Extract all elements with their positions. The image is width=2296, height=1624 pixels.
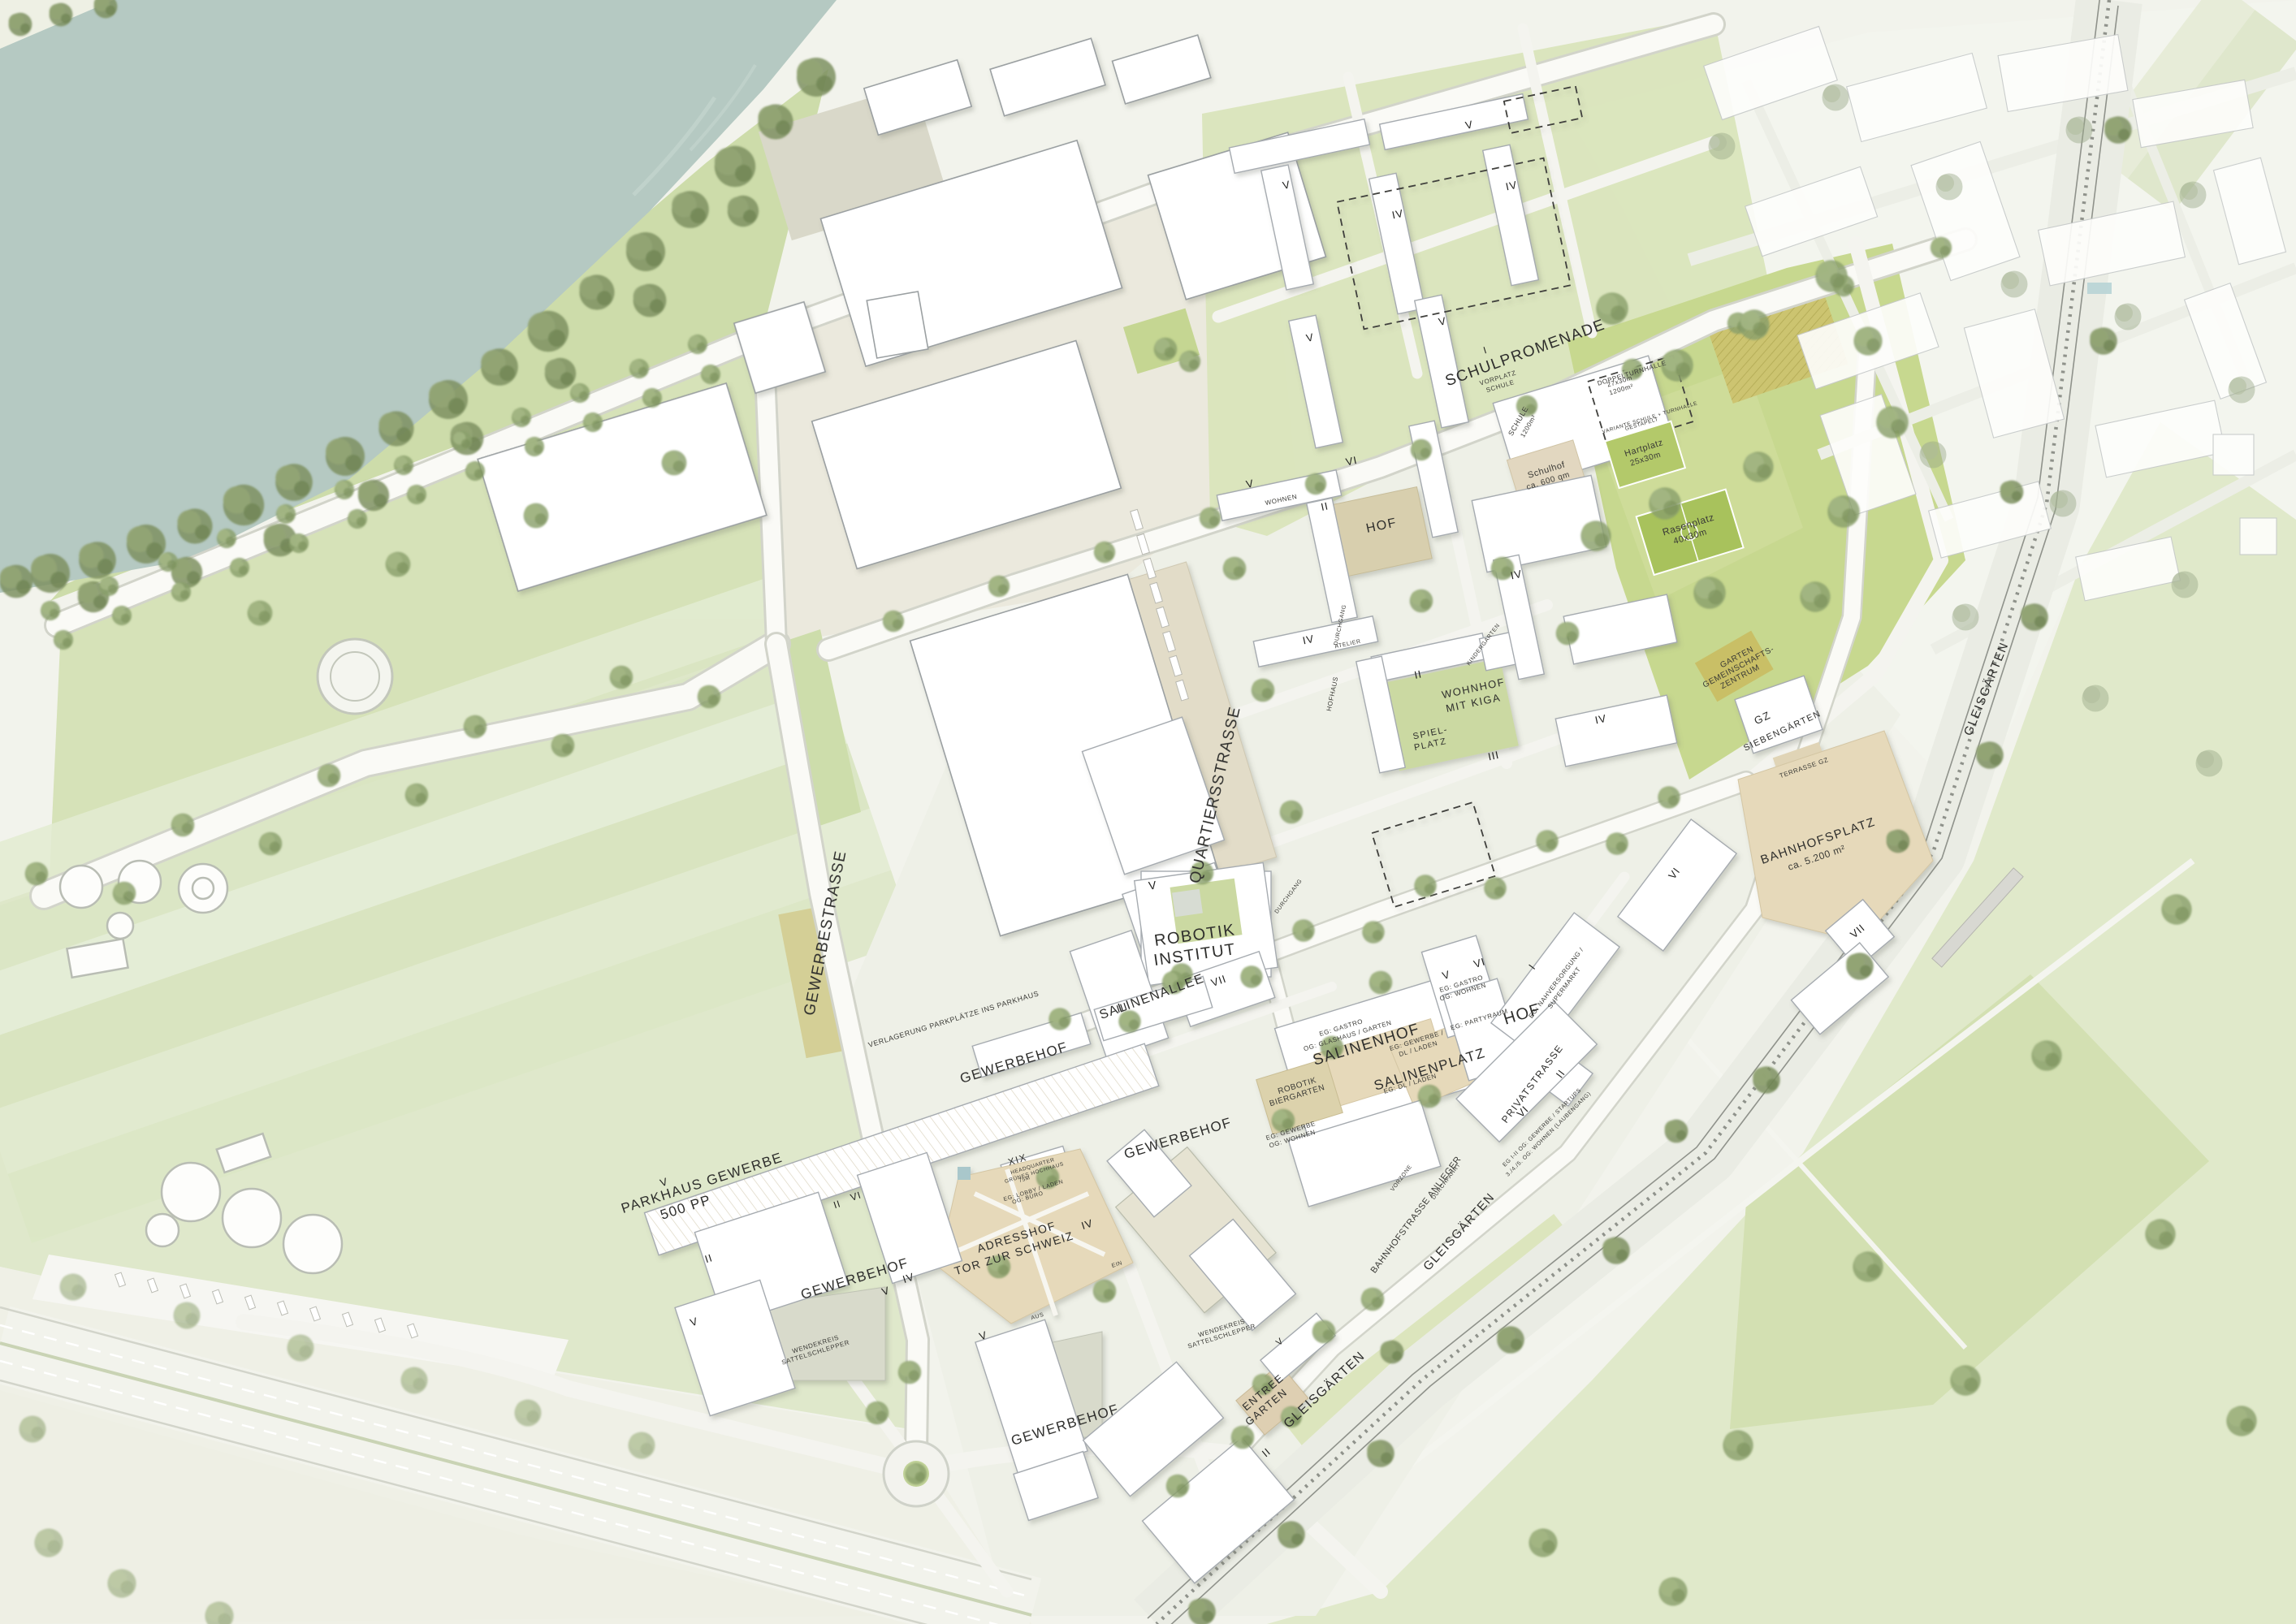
numeral-iv: IV (1391, 207, 1405, 222)
pool (2087, 283, 2112, 294)
numeral-v: V (1148, 878, 1157, 892)
numeral-iv: IV (1510, 568, 1524, 582)
masterplan-map: GEWERBESTRASSE QUARTIERSSTRASSE SCHULPRO… (0, 0, 2296, 1624)
numeral-iv: IV (1505, 179, 1519, 193)
numeral-iv: IV (1594, 712, 1608, 727)
helipad-circle (318, 639, 392, 714)
numeral-vi: VI (1345, 454, 1359, 469)
numeral-iv: IV (1302, 633, 1316, 647)
masterplan-page: GEWERBESTRASSE QUARTIERSSTRASSE SCHULPRO… (0, 0, 2296, 1624)
